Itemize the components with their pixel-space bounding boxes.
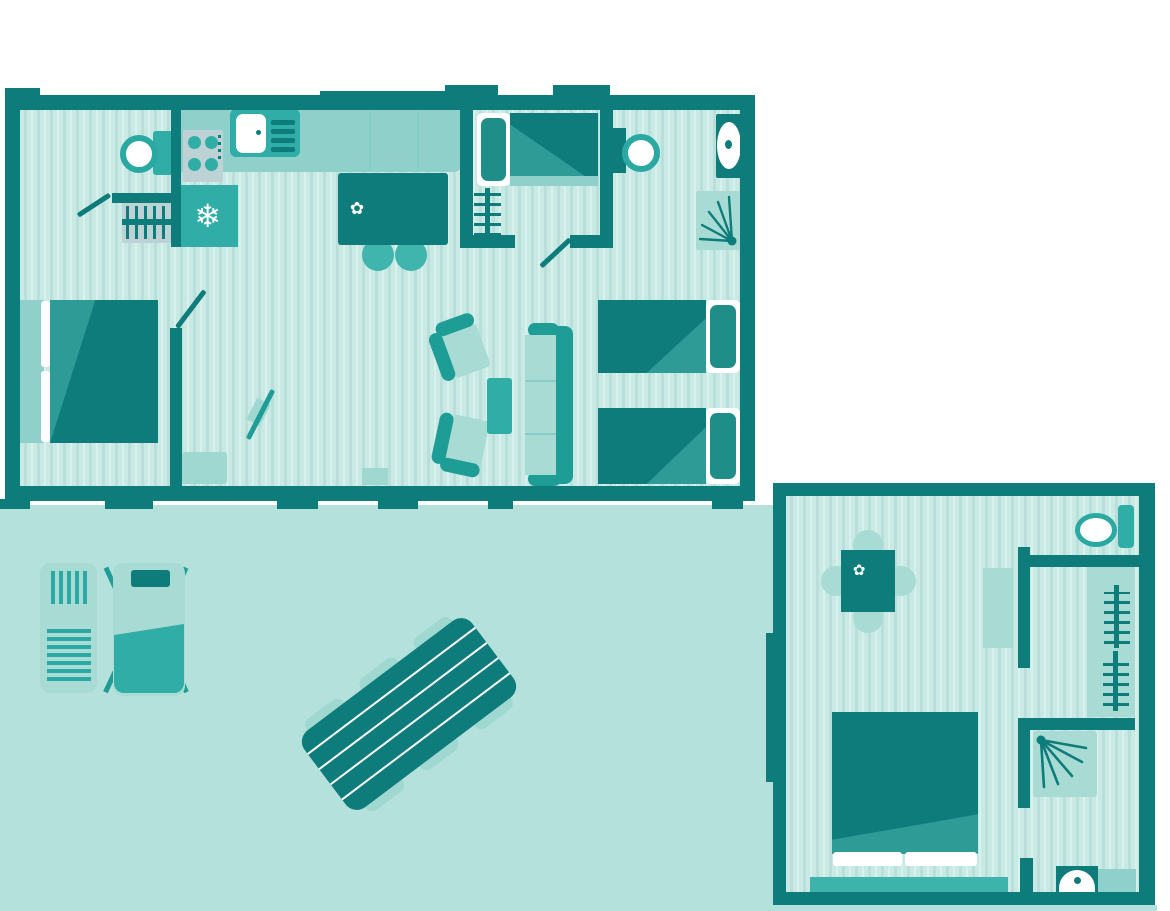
shower-spray-icon [698, 195, 740, 247]
stove-burner [188, 158, 201, 171]
window-tab [445, 85, 498, 95]
stove-knob [218, 142, 221, 145]
annex-wall-left [773, 483, 786, 905]
wall-left [5, 95, 20, 501]
lounger-blanket [114, 624, 184, 693]
shower-spray-icon [1036, 734, 1090, 792]
wall-bedroom2-bottom [460, 235, 515, 248]
toilet-icon [1075, 513, 1117, 547]
annex-wall-shower-v [1018, 718, 1030, 808]
annex-door-tab [766, 633, 773, 782]
washbasin-icon [120, 135, 158, 173]
bed-foot-rug [810, 877, 1008, 893]
doormat-small [362, 468, 388, 485]
toilet-flush-dot [725, 140, 732, 149]
floor-plan-canvas: ❄ ✿ [0, 0, 1170, 911]
hanging-rail-spine [1114, 585, 1119, 648]
window-tab [553, 85, 610, 95]
flower-icon: ✿ [849, 563, 869, 578]
stove-knob [218, 135, 221, 138]
counter-divider [417, 110, 419, 172]
window-tab [5, 88, 40, 95]
snowflake-icon: ❄ [177, 200, 238, 232]
wall-right [740, 95, 755, 501]
stove-knob [218, 156, 221, 159]
radiator-spine [122, 219, 174, 225]
single-bed-pillow [481, 118, 506, 181]
kitchen-sink-basin [236, 114, 266, 153]
sink-drain-dot [256, 130, 261, 135]
wall-bedroom1-lower [170, 328, 182, 487]
coffee-table [487, 378, 512, 434]
footing-tab [378, 501, 418, 509]
kitchen-counter [181, 110, 462, 172]
bed-pillow [905, 852, 977, 866]
annex-wall-toilet-stub [1018, 547, 1030, 668]
hanging-rail-spine [1113, 651, 1118, 711]
flower-icon: ✿ [346, 201, 368, 218]
footing-tab [712, 501, 743, 509]
bed-pillow [41, 371, 50, 442]
toilet-tank [1118, 505, 1134, 548]
annex-wall-shower-h [1022, 718, 1135, 730]
wall-bathroom-left [600, 110, 613, 248]
washbasin-dot [1074, 877, 1081, 884]
footing-tab [277, 501, 318, 509]
lounger-seat-stripes [47, 629, 91, 681]
annex-wall-toilet-h [1030, 555, 1142, 567]
counter-divider [369, 110, 371, 172]
lounger-back-stripes [51, 571, 89, 604]
footing-tab [0, 499, 30, 509]
sofa-back [555, 326, 573, 484]
dining-table [841, 550, 895, 612]
sofa-seam [525, 433, 556, 435]
sink-drainer-line [271, 120, 295, 125]
annex-wall-right [1139, 483, 1155, 905]
annex-wall-bottom [773, 892, 1155, 905]
footing-tab [488, 501, 513, 509]
twin-bed-pillow [710, 413, 736, 479]
annex-wall-basin-stub [1020, 858, 1033, 892]
wall-bottom [5, 486, 755, 501]
wall-top [5, 95, 755, 110]
sink-drainer-line [271, 147, 295, 152]
stove-burner [188, 136, 201, 149]
lounger-headrest [131, 570, 170, 587]
footing-tab [105, 501, 153, 509]
sofa-body [525, 335, 556, 475]
doormat [182, 452, 227, 484]
single-bed-endstrip [510, 176, 598, 186]
sink-drainer-line [271, 138, 295, 143]
bed-pillow [833, 852, 902, 866]
window-tab [320, 91, 445, 95]
wall-bedroom1-kitchen [171, 110, 181, 247]
bed-pillow [41, 301, 50, 367]
wall-bedroom2-left [460, 110, 473, 236]
wall-stub-bedroom1 [112, 193, 174, 203]
wardrobe [983, 568, 1013, 648]
terrace-strip-under-annex [775, 905, 1157, 911]
stove-knob [218, 149, 221, 152]
twin-bed-pillow [710, 305, 736, 368]
stove-burner [205, 158, 218, 171]
radiator-spine [485, 188, 490, 238]
washbasin-cabinet [1098, 869, 1136, 892]
washbasin-icon [622, 134, 660, 172]
sink-drainer-line [271, 129, 295, 134]
annex-wall-top [773, 483, 1155, 496]
sofa-seam [525, 380, 556, 382]
stove-burner [205, 136, 218, 149]
